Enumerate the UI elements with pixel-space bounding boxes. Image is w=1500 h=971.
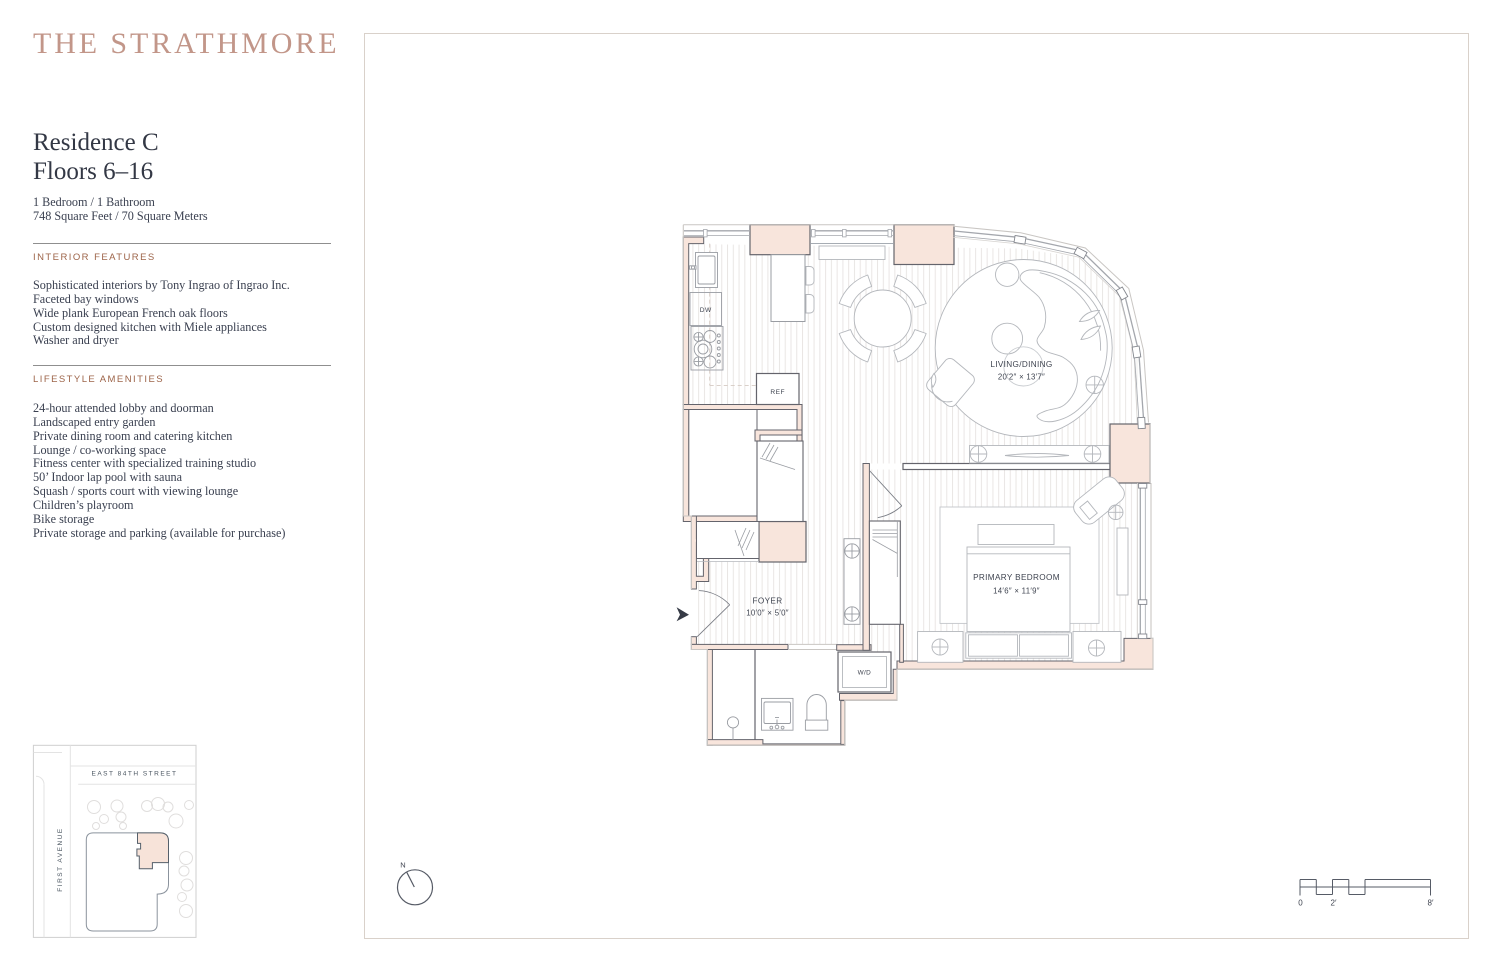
svg-text:10′0″ × 5′0″: 10′0″ × 5′0″ [746,609,789,618]
svg-text:14′6″ × 11′9″: 14′6″ × 11′9″ [993,587,1040,596]
svg-text:2′: 2′ [1331,899,1337,908]
svg-text:8′: 8′ [1428,899,1434,908]
svg-text:DW: DW [700,307,712,314]
svg-text:PRIMARY BEDROOM: PRIMARY BEDROOM [973,573,1060,582]
svg-text:20′2″ × 13′7″: 20′2″ × 13′7″ [998,373,1045,382]
svg-text:W/D: W/D [858,669,872,676]
svg-text:EAST 84TH STREET: EAST 84TH STREET [91,771,177,778]
svg-text:REF: REF [770,389,785,396]
svg-text:FOYER: FOYER [753,597,783,606]
svg-text:N: N [400,861,405,870]
svg-text:0: 0 [1298,899,1303,908]
svg-text:LIVING/DINING: LIVING/DINING [990,360,1052,369]
svg-text:FIRST AVENUE: FIRST AVENUE [57,827,64,891]
